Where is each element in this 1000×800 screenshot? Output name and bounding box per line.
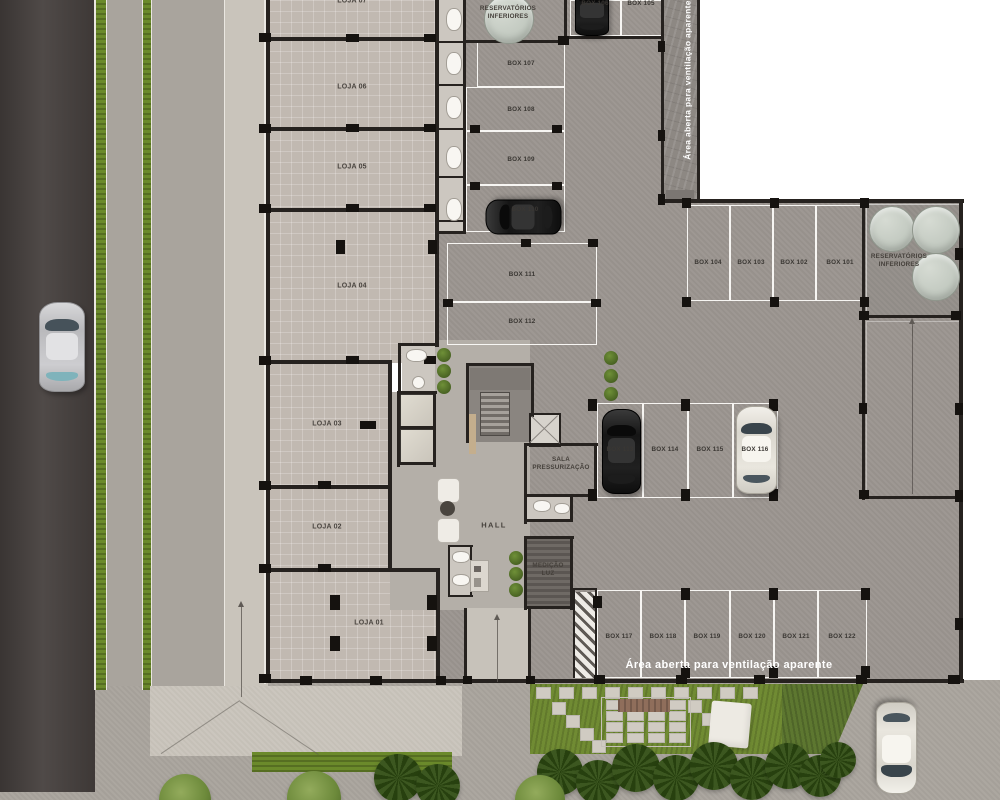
medicao-luz-label: MEDIÇÃO LUZ [532, 562, 563, 578]
box-label: BOX 113 [607, 446, 634, 454]
palm-tree [612, 744, 660, 792]
structural-column [591, 299, 601, 307]
structural-column [318, 481, 331, 489]
structural-column [259, 564, 271, 573]
sala-pressurizacao-label: SALA PRESSURIZAÇÃO [532, 456, 589, 472]
structural-column [955, 618, 963, 630]
pergola-deck-stone [648, 733, 665, 743]
structural-column [948, 675, 960, 684]
reservatorios-label-right: RESERVATÓRIOS INFERIORES [871, 253, 927, 269]
toilet-fixture [446, 146, 462, 169]
structural-column [658, 194, 665, 205]
structural-column [955, 403, 963, 415]
car [486, 200, 562, 235]
parking-box [730, 205, 773, 301]
sink-fixture [412, 376, 425, 389]
wall [398, 343, 401, 395]
street-road [0, 0, 95, 792]
potted-plant [509, 567, 523, 581]
curb-line [142, 0, 143, 690]
box-label: BOX 112 [509, 318, 536, 326]
structural-column [588, 399, 597, 411]
hall-label: HALL [481, 520, 507, 529]
potted-plant [437, 364, 451, 378]
car-rear-window [608, 475, 635, 484]
structural-column [424, 34, 436, 42]
wall [397, 391, 437, 394]
wall [438, 128, 465, 130]
loja-label: LOJA 03 [312, 421, 342, 430]
loja-label: LOJA 04 [337, 283, 367, 292]
stair-treads [480, 392, 510, 436]
structural-column [859, 490, 869, 499]
water-tank [912, 206, 960, 254]
sidewalk-light [225, 0, 268, 686]
wall [524, 606, 574, 609]
structural-column [558, 36, 569, 45]
structural-column [427, 595, 437, 610]
box-label: BOX 115 [697, 446, 724, 454]
structural-column [681, 399, 690, 411]
box-label: BOX 106 [581, 0, 608, 8]
wall [438, 84, 465, 86]
wall [524, 536, 574, 539]
structural-column [259, 356, 271, 365]
box-label: BOX 121 [782, 633, 809, 641]
elevator-cab [400, 394, 435, 428]
floor-plan: HALL SALA PRESSURIZAÇÃO MEDIÇÃO LUZ RESE… [0, 0, 1000, 800]
wall [448, 595, 473, 597]
wall [397, 391, 400, 467]
wall [438, 41, 465, 43]
structural-column [955, 248, 963, 260]
wall [524, 536, 527, 610]
structural-column [594, 675, 605, 684]
structural-column [428, 240, 437, 254]
stair-landing [470, 368, 530, 390]
structural-column [682, 297, 691, 307]
box-label: BOX 107 [507, 60, 534, 68]
loja-label: LOJA 05 [337, 164, 367, 173]
structural-column [346, 356, 359, 364]
stepping-stone [536, 687, 551, 699]
box-label: BOX 101 [826, 259, 853, 267]
structural-column [951, 311, 961, 320]
structural-column [681, 489, 690, 501]
wall [464, 608, 467, 682]
wall [448, 545, 450, 597]
structural-column [860, 297, 869, 307]
pergola-deck-stone [606, 733, 623, 743]
pergola-deck-stone [606, 722, 623, 732]
structural-column [424, 124, 436, 132]
wall [697, 0, 700, 202]
wall [528, 608, 531, 682]
wall [266, 0, 270, 683]
structural-column [861, 588, 870, 600]
structural-column [360, 421, 376, 429]
wall [397, 462, 435, 465]
structural-column [259, 674, 271, 683]
toilet-fixture [406, 349, 427, 362]
structural-column [860, 198, 869, 208]
wood-bench [469, 414, 476, 454]
structural-column [259, 481, 271, 490]
structural-column [859, 403, 867, 414]
reception-desk [470, 560, 489, 592]
wall [463, 0, 466, 234]
structural-column [593, 596, 602, 608]
pergola-deck-stone [627, 722, 644, 732]
toilet-fixture [533, 500, 551, 512]
pergola-deck-stone [627, 711, 644, 721]
ramp-divider [912, 326, 913, 494]
box-label: BOX 122 [828, 633, 855, 641]
ramp-outline [866, 321, 960, 497]
palm-tree [416, 764, 460, 800]
wall [531, 363, 534, 417]
structural-column [436, 676, 446, 685]
direction-arrow-line [241, 605, 242, 697]
pergola-deck-stone [669, 722, 686, 732]
potted-plant [437, 348, 451, 362]
ventilation-label-bottom: Área aberta para ventilação aparente [569, 659, 889, 673]
structural-column [346, 124, 359, 132]
wall [268, 360, 390, 364]
wall [268, 568, 438, 572]
structural-column [259, 204, 271, 213]
structural-column [859, 311, 869, 320]
toilet-fixture [446, 96, 462, 119]
structural-column [318, 564, 331, 572]
desk-item [474, 578, 481, 587]
box-label: BOX 114 [652, 446, 679, 454]
wall [438, 176, 465, 178]
car-windshield [607, 425, 636, 436]
box-label: BOX 116 [742, 446, 769, 454]
box-label: BOX 119 [694, 633, 721, 641]
structural-column [770, 198, 779, 208]
box-label: BOX 102 [780, 259, 807, 267]
wall [466, 363, 534, 366]
stepping-stone [582, 687, 597, 699]
structural-column [588, 489, 597, 501]
wall [959, 199, 963, 683]
structural-column [330, 595, 340, 610]
structural-column [424, 204, 436, 212]
car-roof [882, 735, 911, 763]
structural-column [427, 636, 437, 651]
wall [388, 360, 392, 572]
pergola-deck-stone [669, 700, 686, 710]
box-label: BOX 118 [650, 633, 677, 641]
reservatorios-label-top: RESERVATÓRIOS INFERIORES [480, 5, 536, 21]
potted-plant [604, 369, 618, 383]
potted-plant [604, 387, 618, 401]
potted-plant [604, 351, 618, 365]
structural-column [676, 675, 687, 684]
wall [526, 443, 598, 446]
potted-plant [437, 380, 451, 394]
stepping-stone [559, 687, 574, 699]
structural-column [754, 675, 765, 684]
box-label: BOX 104 [694, 259, 721, 267]
wall [862, 496, 962, 499]
car-windshield [741, 423, 771, 434]
car-windshield [500, 204, 510, 230]
sofa [437, 478, 460, 503]
palm-tree [820, 742, 856, 778]
curb-line [224, 0, 225, 686]
potted-plant [509, 583, 523, 597]
toilet-fixture [446, 8, 462, 31]
structural-column [470, 125, 480, 133]
curb-line [106, 0, 107, 690]
toilet-fixture [554, 503, 570, 514]
direction-arrow-head [494, 614, 500, 620]
car-rear-window [883, 713, 911, 722]
structural-column [463, 676, 472, 684]
car-windshield [881, 765, 911, 777]
desk-item [474, 566, 481, 572]
stepping-stone [697, 687, 712, 699]
direction-arrow-line [497, 618, 498, 682]
structural-column [769, 588, 778, 600]
wall [573, 588, 597, 590]
structural-column [681, 588, 690, 600]
pergola-canopy [618, 699, 670, 712]
wall [526, 494, 596, 497]
parking-box [773, 205, 816, 301]
structural-column [552, 125, 562, 133]
structural-column [658, 130, 665, 141]
curb-line [94, 0, 96, 690]
box-label: BOX 109 [507, 156, 534, 164]
pergola-deck-stone [648, 711, 665, 721]
direction-arrow-head [238, 601, 244, 607]
wall [524, 519, 573, 522]
structural-column [552, 182, 562, 190]
car [39, 302, 85, 392]
stepping-stone [566, 715, 580, 728]
potted-plant [509, 551, 523, 565]
box-label: BOX 105 [627, 0, 654, 8]
structural-column [443, 299, 453, 307]
toilet-fixture [452, 551, 470, 563]
wall [564, 36, 664, 39]
structural-column [346, 34, 359, 42]
stepping-stone [552, 702, 566, 715]
wall [524, 443, 527, 499]
structural-column [470, 182, 480, 190]
structural-column [259, 33, 271, 42]
wall [436, 568, 440, 681]
box-label: BOX 120 [738, 633, 765, 641]
stepping-stone [720, 687, 735, 699]
pergola-deck-stone [669, 711, 686, 721]
wall [436, 231, 464, 234]
water-tank [869, 206, 915, 252]
box-label: BOX 103 [737, 259, 764, 267]
elevator-cab [400, 429, 435, 464]
box-label: BOX 117 [606, 633, 633, 641]
curb-line [151, 0, 152, 690]
car-windshield [45, 319, 79, 331]
loja-label: LOJA 07 [337, 0, 367, 6]
structural-column [770, 297, 779, 307]
void-area [699, 0, 1000, 201]
stepping-stone [743, 687, 758, 699]
car [876, 702, 917, 794]
structural-column [588, 239, 598, 247]
pergola-deck-stone [669, 733, 686, 743]
structural-column [370, 676, 382, 685]
toilet-fixture [446, 52, 462, 75]
box-label: BOX 110 [512, 206, 539, 214]
palm-tree [374, 754, 422, 800]
structural-column [658, 41, 665, 52]
wall [400, 343, 438, 346]
box-label: BOX 108 [507, 106, 534, 114]
loja-label: LOJA 06 [337, 84, 367, 93]
wall [661, 199, 964, 203]
loja-label: LOJA 01 [354, 620, 384, 629]
wall [435, 0, 439, 347]
wall [433, 391, 436, 467]
sofa [437, 518, 460, 543]
loja-label: LOJA 02 [312, 524, 342, 533]
structural-column [521, 239, 531, 247]
pergola-deck-stone [648, 722, 665, 732]
wall [397, 426, 435, 429]
direction-arrow-line [912, 322, 913, 336]
structural-column [955, 490, 963, 502]
structural-column [856, 675, 867, 684]
box-label: BOX 111 [509, 271, 536, 279]
parking-box [687, 205, 730, 301]
coffee-table [440, 501, 455, 516]
parking-box [816, 205, 865, 301]
structural-column [259, 124, 271, 133]
car-roof [46, 333, 78, 360]
ventilation-label-side: Área aberta para ventilação aparente [683, 0, 694, 173]
structural-column [682, 198, 691, 208]
structural-column [336, 240, 345, 254]
toilet-fixture [452, 574, 470, 586]
toilet-fixture [446, 198, 462, 221]
structural-column [330, 636, 340, 651]
wall [661, 0, 664, 202]
structural-column [526, 676, 535, 684]
pergola-deck-stone [627, 733, 644, 743]
direction-arrow-head [909, 318, 915, 324]
structural-column [300, 676, 312, 685]
structural-column [346, 204, 359, 212]
pergola-deck-stone [606, 711, 623, 721]
